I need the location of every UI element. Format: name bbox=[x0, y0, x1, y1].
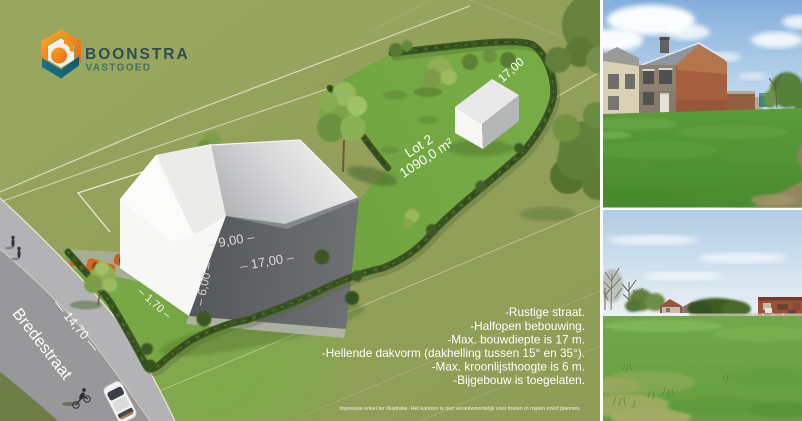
svg-text:-Halfopen bebouwing.: -Halfopen bebouwing. bbox=[470, 319, 585, 333]
svg-text:Impressie enkel ter illustrati: Impressie enkel ter illustratie. Het kan… bbox=[339, 406, 581, 412]
svg-text:-Max. bouwdiepte is 17 m.: -Max. bouwdiepte is 17 m. bbox=[447, 333, 585, 347]
svg-text:-Rustige straat.: -Rustige straat. bbox=[505, 305, 585, 319]
svg-text:-Hellende dakvorm (dakhelling: -Hellende dakvorm (dakhelling tussen 15°… bbox=[322, 346, 585, 360]
svg-text:-Max. kroonlijsthoogte is 6 m.: -Max. kroonlijsthoogte is 6 m. bbox=[432, 360, 585, 374]
svg-text:VASTGOED: VASTGOED bbox=[86, 63, 152, 74]
svg-text:BOONSTRA: BOONSTRA bbox=[85, 46, 190, 63]
svg-text:-Bijgebouw is toegelaten.: -Bijgebouw is toegelaten. bbox=[453, 373, 585, 387]
